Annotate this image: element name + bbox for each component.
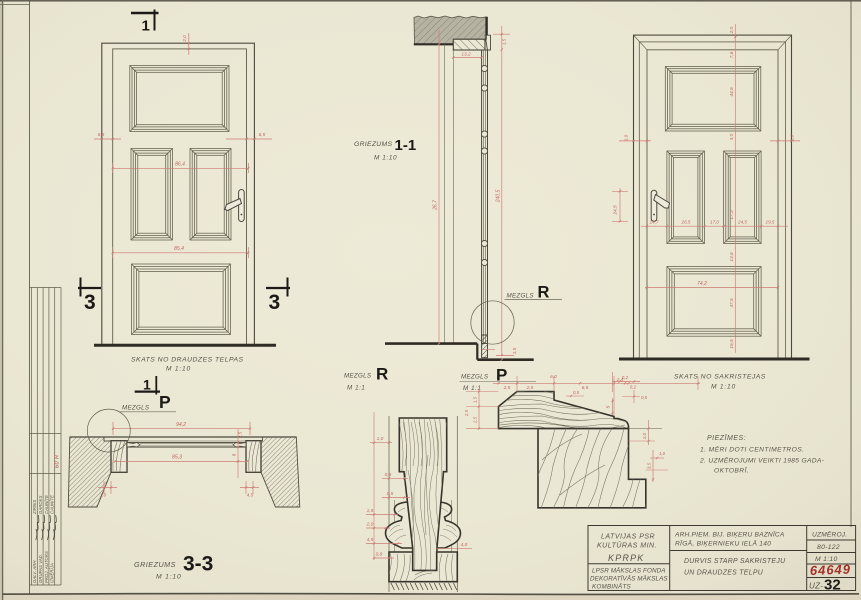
- svg-text:1,0: 1,0: [659, 451, 666, 456]
- svg-text:M 1:10: M 1:10: [711, 384, 736, 391]
- svg-text:2,5: 2,5: [238, 431, 243, 439]
- svg-text:3: 3: [269, 291, 281, 314]
- svg-text:32: 32: [824, 577, 841, 594]
- svg-text:240,5: 240,5: [495, 190, 501, 204]
- svg-text:60 R: 60 R: [55, 454, 61, 468]
- svg-text:MEZGLS: MEZGLS: [344, 373, 372, 380]
- svg-text:UZMĒROJ.: UZMĒROJ.: [812, 531, 847, 539]
- svg-text:19,5: 19,5: [766, 220, 775, 225]
- svg-text:6,5: 6,5: [582, 385, 589, 391]
- svg-text:CAUNĪTE: CAUNĪTE: [50, 495, 55, 514]
- svg-text:R: R: [538, 284, 550, 302]
- svg-text:OKTOBRĪ.: OKTOBRĪ.: [714, 467, 749, 475]
- svg-text:P: P: [159, 392, 171, 412]
- svg-text:14,7: 14,7: [650, 220, 659, 225]
- svg-text:4,0: 4,0: [461, 542, 468, 548]
- svg-text:24,5: 24,5: [737, 220, 747, 225]
- svg-text:IZMĒRĪJA: IZMĒRĪJA: [50, 563, 55, 583]
- svg-text:KPRPK: KPRPK: [608, 553, 645, 563]
- svg-text:1-1: 1-1: [395, 137, 417, 154]
- svg-text:85,4: 85,4: [174, 246, 184, 252]
- svg-text:8: 8: [232, 453, 237, 456]
- svg-text:44,5: 44,5: [729, 87, 735, 97]
- svg-text:0,5: 0,5: [387, 491, 394, 497]
- svg-text:80-122: 80-122: [817, 544, 840, 551]
- svg-text:47,5: 47,5: [729, 298, 735, 308]
- svg-text:24,5: 24,5: [613, 205, 619, 216]
- svg-text:2,0: 2,0: [729, 26, 735, 34]
- svg-text:GRIEZUMS: GRIEZUMS: [134, 560, 176, 569]
- svg-text:RĪGĀ, BIĶERNIEKU IELĀ 140: RĪGĀ, BIĶERNIEKU IELĀ 140: [675, 540, 771, 548]
- svg-text:MEZGLS: MEZGLS: [461, 374, 489, 381]
- svg-text:3-3: 3-3: [183, 553, 213, 576]
- svg-text:2. UZMĒROJUMI VEIKTI 1985 GA: 2. UZMĒROJUMI VEIKTI 1985 GADA-: [699, 457, 825, 465]
- svg-text:6,5: 6,5: [259, 132, 266, 138]
- svg-text:0,8: 0,8: [376, 552, 383, 558]
- svg-text:DEKORATĪVĀS MĀKSLAS: DEKORATĪVĀS MĀKSLAS: [590, 575, 668, 583]
- svg-text:GRUPAS VAD.: GRUPAS VAD.: [38, 554, 43, 583]
- svg-text:17,0: 17,0: [710, 220, 719, 225]
- svg-text:4,5: 4,5: [367, 537, 374, 543]
- svg-text:M 1:10: M 1:10: [166, 366, 191, 373]
- svg-text:2,5: 2,5: [503, 385, 511, 391]
- svg-text:4,5: 4,5: [247, 493, 254, 498]
- svg-text:1: 1: [143, 377, 151, 393]
- svg-text:KULTŪRAS MIN.: KULTŪRAS MIN.: [597, 542, 657, 550]
- svg-text:2,0: 2,0: [182, 35, 187, 43]
- svg-text:R: R: [376, 365, 388, 384]
- svg-text:6,0: 6,0: [550, 374, 557, 380]
- svg-text:1,0: 1,0: [790, 134, 795, 141]
- svg-text:SKATS NO DRAUDZES TELPAS: SKATS NO DRAUDZES TELPAS: [131, 357, 244, 364]
- svg-text:85,3: 85,3: [172, 455, 182, 461]
- svg-text:1,5: 1,5: [502, 38, 507, 45]
- svg-text:74,2: 74,2: [697, 281, 707, 287]
- svg-text:94,2: 94,2: [176, 422, 186, 428]
- svg-text:CAUNĪTE: CAUNĪTE: [44, 495, 49, 514]
- svg-text:2,5: 2,5: [473, 416, 478, 424]
- svg-text:2,0: 2,0: [642, 432, 647, 440]
- svg-text:1: 1: [142, 18, 150, 35]
- svg-text:ARH.PIEM. BIJ. BIĶERU BAZNĪCA: ARH.PIEM. BIJ. BIĶERU BAZNĪCA: [674, 531, 785, 539]
- svg-text:2,0: 2,0: [366, 522, 374, 528]
- svg-text:GAROKS: GAROKS: [38, 495, 43, 514]
- svg-text:UZ-: UZ-: [809, 582, 823, 591]
- svg-text:LATVIJAS PSR: LATVIJAS PSR: [601, 534, 655, 541]
- svg-text:3,0: 3,0: [729, 133, 735, 140]
- svg-text:GALV. ARH.: GALV. ARH.: [32, 559, 37, 583]
- svg-text:7,6: 7,6: [729, 51, 735, 58]
- svg-text:MEZGLS: MEZGLS: [122, 405, 150, 412]
- svg-text:6,5: 6,5: [98, 132, 105, 138]
- svg-text:1,5: 1,5: [512, 347, 517, 354]
- svg-text:3: 3: [84, 291, 96, 314]
- svg-text:86,4: 86,4: [175, 162, 185, 168]
- svg-text:M 1:10: M 1:10: [156, 574, 182, 581]
- svg-text:1,5: 1,5: [473, 396, 478, 403]
- svg-text:M 1:10: M 1:10: [374, 155, 397, 162]
- svg-text:26,7: 26,7: [433, 200, 439, 211]
- svg-text:2,5: 2,5: [464, 409, 469, 417]
- svg-text:13,2: 13,2: [461, 51, 471, 57]
- svg-text:1,5: 1,5: [367, 508, 374, 514]
- svg-text:0,2: 0,2: [630, 385, 637, 390]
- svg-text:13,6: 13,6: [729, 252, 735, 262]
- svg-text:0,5: 0,5: [641, 395, 648, 400]
- svg-text:KOMBINĀTS: KOMBINĀTS: [592, 583, 631, 591]
- svg-text:3,5: 3,5: [647, 462, 652, 469]
- svg-text:PIEZĪMES:: PIEZĪMES:: [707, 434, 746, 442]
- svg-text:1,0: 1,0: [624, 134, 629, 141]
- svg-text:1. MĒRI DOTI CENTIMETROS.: 1. MĒRI DOTI CENTIMETROS.: [700, 446, 804, 454]
- svg-text:ZIRNIS: ZIRNIS: [32, 500, 37, 515]
- svg-text:5: 5: [606, 405, 612, 408]
- svg-text:0,5: 0,5: [573, 390, 580, 395]
- svg-text:1,0: 1,0: [377, 436, 384, 442]
- svg-text:LPSR MĀKSLAS FONDA: LPSR MĀKSLAS FONDA: [592, 567, 666, 575]
- svg-text:15,5: 15,5: [729, 339, 735, 349]
- svg-text:DURVIS STARP SAKRISTEJU: DURVIS STARP SAKRISTEJU: [684, 558, 786, 565]
- svg-text:SKATS NO SAKRISTEJAS: SKATS NO SAKRISTEJAS: [674, 374, 766, 381]
- svg-text:2,5: 2,5: [526, 385, 534, 391]
- svg-text:2,4: 2,4: [616, 377, 624, 382]
- svg-text:1,0: 1,0: [100, 493, 107, 498]
- svg-text:UN DRAUDZES TELPU: UN DRAUDZES TELPU: [684, 570, 764, 577]
- svg-text:0,5: 0,5: [385, 472, 392, 478]
- svg-text:MEZGLS: MEZGLS: [507, 293, 535, 300]
- svg-text:PROJ. AUTORS: PROJ. AUTORS: [44, 551, 49, 583]
- svg-text:M 1:1: M 1:1: [347, 385, 365, 392]
- svg-text:17,3: 17,3: [729, 210, 735, 220]
- svg-text:26,5: 26,5: [681, 220, 691, 225]
- svg-text:GRIEZUMS: GRIEZUMS: [354, 141, 392, 148]
